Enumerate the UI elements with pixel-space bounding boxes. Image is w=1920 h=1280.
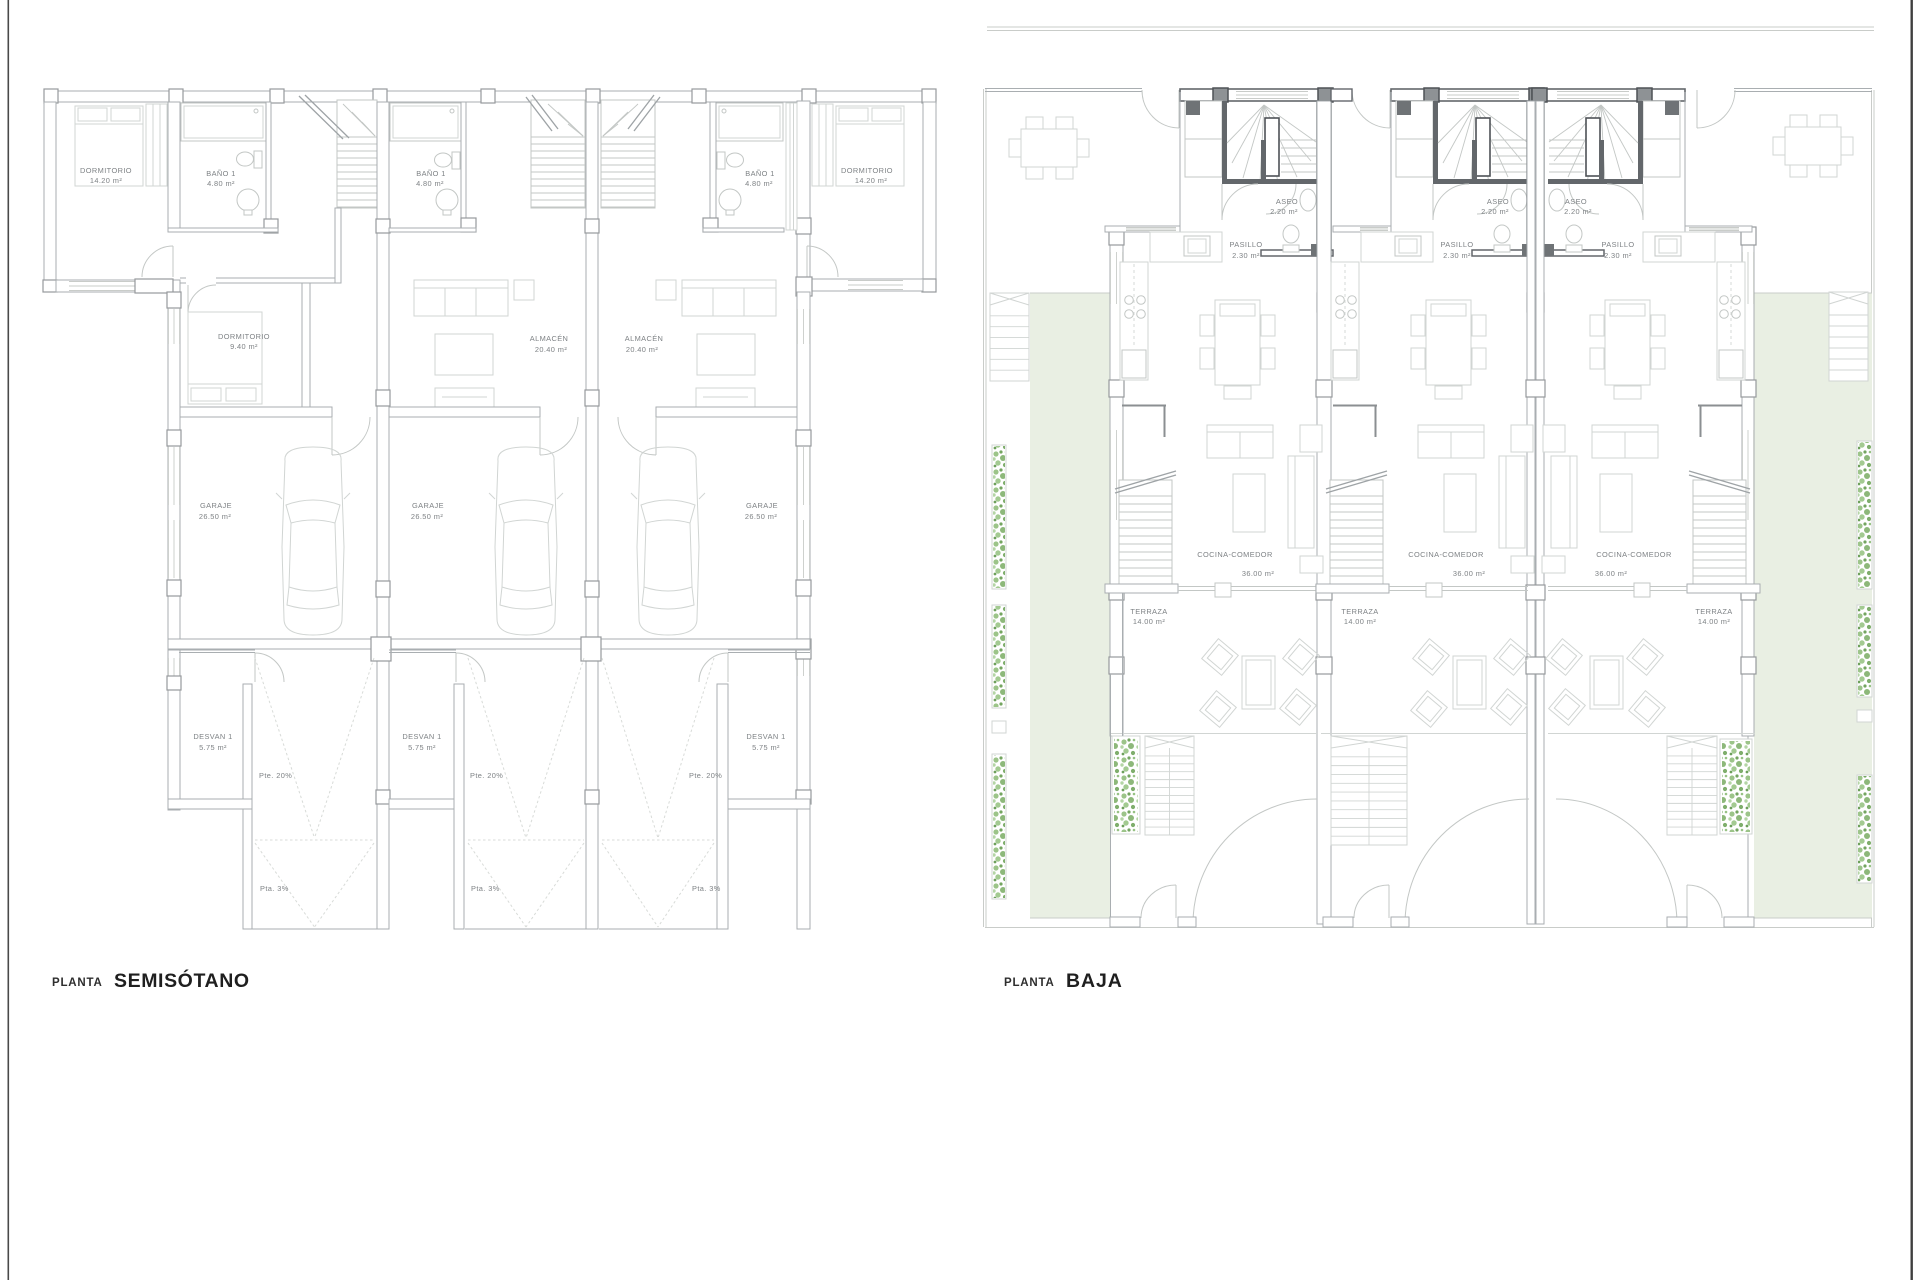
svg-text:COCINA-COMEDOR: COCINA-COMEDOR (1197, 550, 1272, 559)
svg-text:26.50 m²: 26.50 m² (199, 512, 232, 521)
svg-text:5.75 m²: 5.75 m² (752, 743, 780, 752)
svg-text:ALMACÉN: ALMACÉN (625, 334, 664, 343)
svg-text:BAÑO 1: BAÑO 1 (745, 169, 775, 178)
svg-text:5.75 m²: 5.75 m² (199, 743, 227, 752)
svg-text:14.20 m²: 14.20 m² (90, 176, 123, 185)
svg-text:36.00 m²: 36.00 m² (1595, 569, 1628, 578)
svg-text:PASILLO: PASILLO (1440, 240, 1473, 249)
svg-text:Pta. 3%: Pta. 3% (260, 884, 289, 893)
svg-text:2.30 m²: 2.30 m² (1443, 251, 1471, 260)
svg-text:PASILLO: PASILLO (1229, 240, 1262, 249)
svg-text:COCINA-COMEDOR: COCINA-COMEDOR (1408, 550, 1483, 559)
svg-text:TERRAZA: TERRAZA (1341, 607, 1378, 616)
svg-text:Pte. 20%: Pte. 20% (259, 771, 292, 780)
svg-text:5.75 m²: 5.75 m² (408, 743, 436, 752)
svg-text:9.40 m²: 9.40 m² (230, 342, 258, 351)
svg-text:DESVAN 1: DESVAN 1 (746, 732, 785, 741)
svg-text:DESVAN 1: DESVAN 1 (402, 732, 441, 741)
svg-text:14.00 m²: 14.00 m² (1698, 617, 1731, 626)
svg-text:2.20 m²: 2.20 m² (1481, 207, 1509, 216)
svg-text:PLANTA: PLANTA (1004, 977, 1055, 989)
svg-text:BAÑO 1: BAÑO 1 (206, 169, 236, 178)
svg-text:PASILLO: PASILLO (1601, 240, 1634, 249)
svg-text:4.80 m²: 4.80 m² (207, 179, 235, 188)
svg-text:SEMISÓTANO: SEMISÓTANO (114, 968, 250, 992)
svg-text:COCINA-COMEDOR: COCINA-COMEDOR (1596, 550, 1671, 559)
svg-text:TERRAZA: TERRAZA (1130, 607, 1167, 616)
svg-text:20.40 m²: 20.40 m² (626, 345, 659, 354)
svg-text:26.50 m²: 26.50 m² (745, 512, 778, 521)
svg-text:BAJA: BAJA (1066, 970, 1123, 992)
svg-text:GARAJE: GARAJE (200, 501, 232, 510)
svg-text:2.30 m²: 2.30 m² (1604, 251, 1632, 260)
svg-text:14.00 m²: 14.00 m² (1133, 617, 1166, 626)
svg-text:DESVAN 1: DESVAN 1 (193, 732, 232, 741)
svg-text:20.40 m²: 20.40 m² (535, 345, 568, 354)
svg-text:4.80 m²: 4.80 m² (416, 179, 444, 188)
svg-text:2.20 m²: 2.20 m² (1564, 207, 1592, 216)
svg-text:Pta. 3%: Pta. 3% (471, 884, 500, 893)
svg-text:ASEO: ASEO (1276, 197, 1298, 206)
svg-text:PLANTA: PLANTA (52, 977, 103, 989)
svg-text:DORMITORIO: DORMITORIO (218, 332, 270, 341)
svg-text:ASEO: ASEO (1487, 197, 1509, 206)
svg-text:4.80 m²: 4.80 m² (745, 179, 773, 188)
svg-text:ALMACÉN: ALMACÉN (530, 334, 569, 343)
svg-text:2.20 m²: 2.20 m² (1270, 207, 1298, 216)
svg-text:DORMITORIO: DORMITORIO (841, 166, 893, 175)
svg-text:TERRAZA: TERRAZA (1695, 607, 1732, 616)
svg-text:BAÑO 1: BAÑO 1 (416, 169, 446, 178)
svg-text:14.20 m²: 14.20 m² (855, 176, 888, 185)
svg-text:14.00 m²: 14.00 m² (1344, 617, 1377, 626)
svg-text:Pte. 20%: Pte. 20% (689, 771, 722, 780)
svg-text:Pta. 3%: Pta. 3% (692, 884, 721, 893)
svg-text:36.00 m²: 36.00 m² (1242, 569, 1275, 578)
svg-text:DORMITORIO: DORMITORIO (80, 166, 132, 175)
svg-text:Pte. 20%: Pte. 20% (470, 771, 503, 780)
svg-text:GARAJE: GARAJE (412, 501, 444, 510)
svg-text:2.30 m²: 2.30 m² (1232, 251, 1260, 260)
svg-text:GARAJE: GARAJE (746, 501, 778, 510)
svg-text:ASEO: ASEO (1565, 197, 1587, 206)
svg-text:26.50 m²: 26.50 m² (411, 512, 444, 521)
svg-text:36.00 m²: 36.00 m² (1453, 569, 1486, 578)
